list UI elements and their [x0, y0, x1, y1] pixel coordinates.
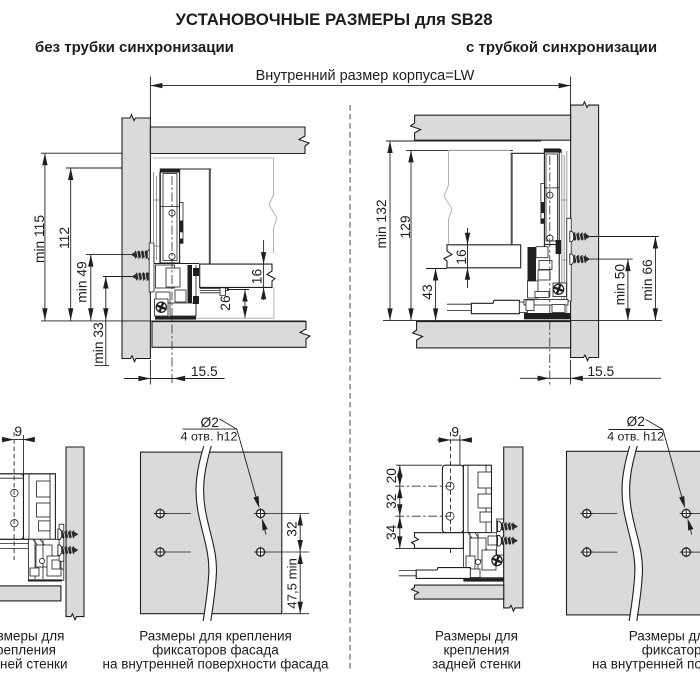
svg-text:Ø2: Ø2: [626, 414, 644, 429]
svg-text:32: 32: [384, 494, 399, 509]
svg-text:47,5 min: 47,5 min: [285, 558, 300, 609]
svg-text:min 66: min 66: [640, 259, 655, 301]
svg-text:34: 34: [384, 524, 399, 540]
svg-text:Внутренний размер корпуса=LW: Внутренний размер корпуса=LW: [256, 68, 475, 84]
svg-text:16: 16: [250, 269, 265, 285]
svg-text:min 115: min 115: [32, 215, 47, 263]
svg-text:фиксаторов фасада: фиксаторов фасада: [642, 643, 700, 658]
svg-text:min 49: min 49: [75, 261, 90, 303]
svg-text:15.5: 15.5: [587, 364, 614, 379]
svg-text:20: 20: [384, 468, 399, 484]
svg-text:Ø2: Ø2: [200, 415, 218, 430]
svg-text:без трубки синхронизации: без трубки синхронизации: [35, 39, 234, 56]
svg-text:с трубкой синхронизации: с трубкой синхронизации: [466, 39, 657, 56]
svg-text:на внутренней поверхности фаса: на внутренней поверхности фасада: [103, 657, 329, 672]
svg-text:Размеры для крепления: Размеры для крепления: [629, 629, 700, 644]
svg-text:15.5: 15.5: [191, 364, 218, 379]
svg-text:min 33: min 33: [91, 322, 106, 364]
svg-text:129: 129: [398, 215, 413, 238]
svg-text:112: 112: [57, 227, 72, 249]
svg-text:Размеры для: Размеры для: [0, 629, 64, 644]
svg-text:крепления: крепления: [444, 643, 510, 658]
svg-text:задней стенки: задней стенки: [432, 657, 521, 672]
svg-text:задней стенки: задней стенки: [0, 657, 68, 672]
svg-text:9: 9: [14, 424, 22, 439]
svg-text:32: 32: [285, 521, 300, 536]
svg-text:УСТАНОВОЧНЫЕ РАЗМЕРЫ для SB28: УСТАНОВОЧНЫЕ РАЗМЕРЫ для SB28: [175, 10, 492, 29]
svg-text:26: 26: [218, 295, 233, 311]
svg-text:Размеры для: Размеры для: [435, 629, 518, 644]
svg-text:4 отв. h12: 4 отв. h12: [607, 429, 664, 443]
svg-text:9: 9: [451, 425, 459, 440]
svg-text:на внутренней поверхности фаса: на внутренней поверхности фасада: [592, 657, 700, 672]
svg-text:43: 43: [420, 284, 435, 300]
svg-text:4 отв. h12: 4 отв. h12: [181, 429, 238, 443]
svg-text:min 132: min 132: [374, 199, 389, 248]
svg-text:16: 16: [454, 249, 469, 265]
svg-text:min 50: min 50: [613, 264, 628, 306]
svg-text:фиксаторов фасада: фиксаторов фасада: [152, 643, 279, 658]
svg-text:Размеры для крепления: Размеры для крепления: [139, 629, 292, 644]
svg-text:крепления: крепления: [0, 643, 56, 658]
